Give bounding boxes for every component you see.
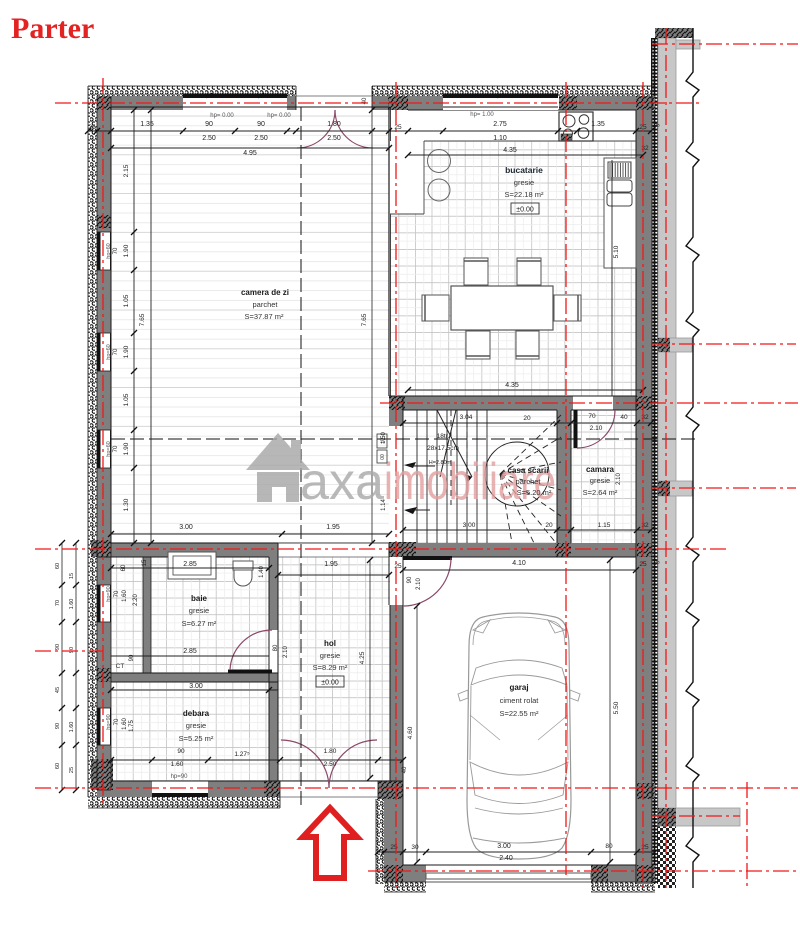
svg-text:4.35: 4.35 xyxy=(505,382,519,389)
svg-text:70: 70 xyxy=(588,413,596,420)
svg-text:4.95: 4.95 xyxy=(243,150,257,157)
svg-text:1.60: 1.60 xyxy=(171,761,184,768)
svg-text:2.50: 2.50 xyxy=(324,761,337,768)
svg-text:25: 25 xyxy=(390,844,398,851)
svg-text:S=22.55 m²: S=22.55 m² xyxy=(500,709,539,718)
svg-text:1.80: 1.80 xyxy=(324,748,337,755)
svg-text:1.35: 1.35 xyxy=(140,121,154,128)
svg-text:hp=60: hp=60 xyxy=(106,441,112,456)
svg-text:1.90: 1.90 xyxy=(123,442,130,455)
svg-text:1.95: 1.95 xyxy=(326,524,340,531)
svg-text:28x17.5cm: 28x17.5cm xyxy=(427,445,459,452)
svg-text:S=8.29 m²: S=8.29 m² xyxy=(313,663,348,672)
svg-text:hp=90: hp=90 xyxy=(106,714,112,729)
svg-text:20: 20 xyxy=(523,415,531,422)
svg-text:hp= 0.00: hp= 0.00 xyxy=(267,113,291,119)
svg-text:70: 70 xyxy=(114,718,120,725)
svg-text:parchet: parchet xyxy=(515,477,541,486)
svg-text:70: 70 xyxy=(55,600,61,606)
svg-text:40: 40 xyxy=(620,414,628,421)
svg-text:bucatarie: bucatarie xyxy=(505,165,543,175)
svg-text:debara: debara xyxy=(183,709,210,718)
svg-text:3.00: 3.00 xyxy=(179,524,193,531)
svg-text:1.10: 1.10 xyxy=(493,135,507,142)
svg-text:gresie: gresie xyxy=(590,476,610,485)
svg-text:00: 00 xyxy=(380,454,386,460)
svg-text:4.60: 4.60 xyxy=(407,726,414,739)
svg-text:hp=90: hp=90 xyxy=(106,586,112,601)
svg-text:7⁵: 7⁵ xyxy=(654,560,660,567)
svg-text:7.65: 7.65 xyxy=(139,313,146,326)
svg-text:CT: CT xyxy=(116,663,125,670)
svg-text:90: 90 xyxy=(257,121,265,128)
svg-text:5.10: 5.10 xyxy=(613,245,620,258)
svg-text:3.00: 3.00 xyxy=(463,522,476,529)
svg-text:2.50: 2.50 xyxy=(327,135,341,142)
svg-text:90: 90 xyxy=(129,654,135,661)
svg-text:1.30: 1.30 xyxy=(123,498,130,511)
svg-text:90: 90 xyxy=(177,748,185,755)
svg-text:casa scarii: casa scarii xyxy=(508,466,549,475)
svg-text:hol: hol xyxy=(324,639,336,648)
svg-text:gresie: gresie xyxy=(514,178,534,187)
svg-text:1.90: 1.90 xyxy=(123,244,130,257)
svg-text:gresie: gresie xyxy=(189,606,209,615)
svg-text:7.65: 7.65 xyxy=(361,313,368,326)
svg-text:hp= 1.00: hp= 1.00 xyxy=(470,112,494,118)
svg-text:2.50: 2.50 xyxy=(202,135,216,142)
svg-text:S=37.87 m²: S=37.87 m² xyxy=(245,312,284,321)
svg-text:ciment rolat: ciment rolat xyxy=(500,696,540,705)
svg-text:garaj: garaj xyxy=(509,683,528,692)
svg-text:4.35: 4.35 xyxy=(503,147,517,154)
svg-text:±0.00: ±0.00 xyxy=(321,680,339,687)
svg-text:25: 25 xyxy=(69,767,75,773)
svg-text:1.40: 1.40 xyxy=(259,566,265,578)
svg-text:70: 70 xyxy=(113,247,119,254)
svg-text:Parter: Parter xyxy=(11,12,94,45)
svg-text:80: 80 xyxy=(273,644,279,651)
svg-text:15: 15 xyxy=(69,573,75,579)
svg-text:4.10: 4.10 xyxy=(512,560,526,567)
svg-text:45: 45 xyxy=(55,687,61,693)
svg-text:1.95: 1.95 xyxy=(324,561,338,568)
svg-text:2.10: 2.10 xyxy=(616,473,622,485)
svg-text:1.27⁵: 1.27⁵ xyxy=(234,751,250,758)
svg-text:1.60: 1.60 xyxy=(69,722,75,733)
svg-text:70: 70 xyxy=(114,590,120,597)
svg-text:3.04: 3.04 xyxy=(460,414,473,421)
svg-text:2.85: 2.85 xyxy=(183,648,197,655)
svg-text:2.85: 2.85 xyxy=(183,561,197,568)
svg-text:2.15: 2.15 xyxy=(123,164,130,177)
svg-text:1.05: 1.05 xyxy=(123,294,130,307)
svg-text:S=5.20 m²: S=5.20 m² xyxy=(517,488,552,497)
svg-text:S=6.27 m²: S=6.27 m² xyxy=(182,619,217,628)
svg-text:40: 40 xyxy=(402,766,408,773)
svg-text:hp=90: hp=90 xyxy=(171,774,189,780)
svg-text:S=5.25 m²: S=5.25 m² xyxy=(179,734,214,743)
svg-text:camara: camara xyxy=(586,465,615,474)
svg-text:3.00: 3.00 xyxy=(189,683,203,690)
svg-text:90: 90 xyxy=(407,576,413,583)
svg-text:1.75: 1.75 xyxy=(129,720,135,732)
svg-text:hp= 0.00: hp= 0.00 xyxy=(210,113,234,119)
svg-text:2.40: 2.40 xyxy=(499,855,513,862)
svg-text:2.50: 2.50 xyxy=(254,135,268,142)
svg-text:S=22.18 m²: S=22.18 m² xyxy=(505,190,544,199)
svg-text:7⁵: 7⁵ xyxy=(655,843,661,850)
svg-text:60: 60 xyxy=(55,563,61,569)
svg-text:60: 60 xyxy=(55,763,61,769)
svg-text:1.60: 1.60 xyxy=(69,599,75,610)
svg-text:4.25: 4.25 xyxy=(359,651,366,664)
svg-text:20: 20 xyxy=(545,522,553,529)
svg-text:parchet: parchet xyxy=(252,300,278,309)
svg-text:baie: baie xyxy=(191,594,208,603)
svg-text:gresie: gresie xyxy=(186,721,206,730)
svg-text:camera de zi: camera de zi xyxy=(241,288,289,297)
svg-text:1.60: 1.60 xyxy=(122,718,128,730)
svg-text:25: 25 xyxy=(88,124,96,131)
svg-text:70: 70 xyxy=(113,348,119,355)
svg-text:3.00: 3.00 xyxy=(497,843,511,850)
svg-text:7⁵: 7⁵ xyxy=(654,123,660,130)
svg-text:2.10: 2.10 xyxy=(590,425,603,432)
svg-text:1.15: 1.15 xyxy=(598,522,611,529)
svg-text:±0.00: ±0.00 xyxy=(516,207,534,214)
svg-text:70: 70 xyxy=(113,445,119,452)
svg-text:5.50: 5.50 xyxy=(613,701,620,714)
svg-text:hp=60: hp=60 xyxy=(106,243,112,258)
svg-text:hp=60: hp=60 xyxy=(106,344,112,359)
svg-text:±0: ±0 xyxy=(380,438,386,444)
svg-text:2.20: 2.20 xyxy=(133,594,139,606)
svg-text:90: 90 xyxy=(205,121,213,128)
svg-text:S=2.64 m²: S=2.64 m² xyxy=(583,488,618,497)
svg-text:1.35: 1.35 xyxy=(591,121,605,128)
svg-text:15: 15 xyxy=(142,559,148,566)
svg-text:90: 90 xyxy=(69,647,75,653)
svg-text:2.10: 2.10 xyxy=(283,646,289,658)
svg-text:1.60: 1.60 xyxy=(122,590,128,602)
svg-text:1.90: 1.90 xyxy=(123,345,130,358)
svg-text:80: 80 xyxy=(605,843,613,850)
svg-text:60: 60 xyxy=(121,564,127,571)
svg-text:90: 90 xyxy=(55,723,61,729)
svg-text:1.05: 1.05 xyxy=(123,393,130,406)
svg-text:2.75: 2.75 xyxy=(493,121,507,128)
svg-text:2.10: 2.10 xyxy=(416,578,422,590)
svg-text:90: 90 xyxy=(55,644,61,650)
svg-text:axa: axa xyxy=(300,453,384,511)
svg-text:30: 30 xyxy=(411,844,419,851)
svg-text:1.80: 1.80 xyxy=(327,121,341,128)
svg-text:gresie: gresie xyxy=(320,651,340,660)
